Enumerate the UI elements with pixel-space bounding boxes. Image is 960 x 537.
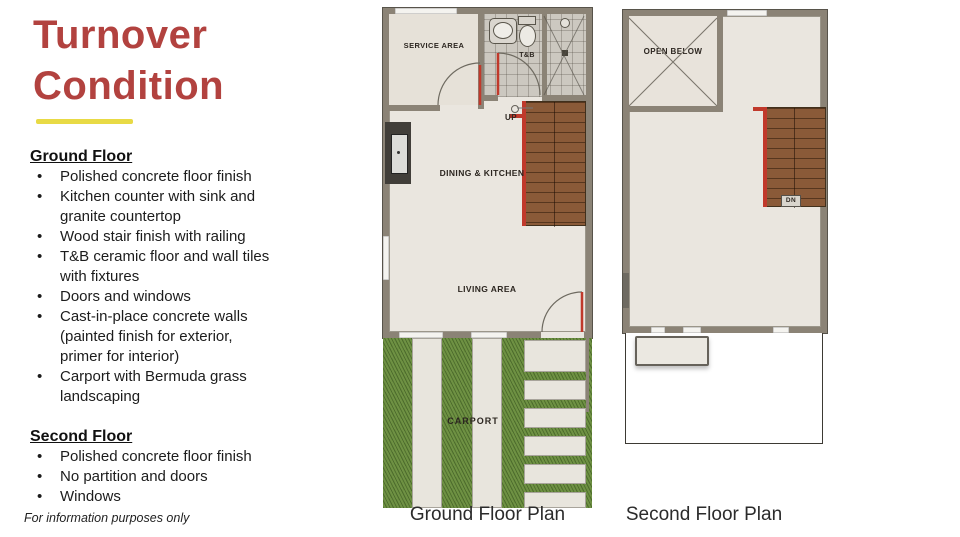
list-item: Carport with Bermuda grass landscaping: [28, 367, 316, 407]
stair-railing-arm: [753, 107, 764, 111]
ground-plan-caption: Ground Floor Plan: [383, 504, 592, 526]
sink-drain: [397, 151, 400, 154]
shower-head-fixture: [560, 18, 570, 28]
list-item: T&B ceramic floor and wall tiles with fi…: [28, 247, 316, 287]
slide: Turnover Condition Ground Floor Polished…: [0, 0, 960, 537]
open-below-area: [629, 16, 717, 106]
title-underline: [36, 119, 133, 124]
living-area-label: LIVING AREA: [431, 284, 543, 294]
second-plan-caption: Second Floor Plan: [598, 504, 810, 526]
footer-note: For information purposes only: [24, 511, 189, 525]
wall-tnb-bottom-left: [484, 95, 498, 101]
carport-area: CARPORT: [383, 338, 592, 508]
list-item: Doors and windows: [28, 287, 316, 307]
window-left: [623, 273, 629, 308]
paver-slab: [524, 464, 586, 484]
stair-center-line: [794, 108, 795, 208]
page-title: Turnover Condition: [33, 10, 353, 112]
window-top: [727, 10, 767, 16]
kitchen-counter: [385, 122, 411, 184]
carport-label: CARPORT: [433, 416, 513, 426]
list-item: Wood stair finish with railing: [28, 227, 316, 247]
wall-open-below-right: [717, 16, 723, 112]
carport-side-wall: [586, 338, 589, 412]
paver-slab: [524, 408, 586, 428]
ground-floor-heading: Ground Floor: [30, 148, 280, 166]
open-below-label: OPEN BELOW: [643, 47, 703, 57]
stair-center-line: [554, 102, 555, 227]
lavatory-basin: [493, 22, 513, 39]
wall-open-below-bottom: [629, 106, 723, 112]
toilet-fixture: [519, 25, 536, 47]
entry-pad: [524, 340, 586, 372]
stair-railing: [763, 107, 767, 207]
paver-slab: [524, 436, 586, 456]
dining-kitchen-label: DINING & KITCHEN: [421, 168, 543, 178]
stairs-down: [763, 107, 826, 207]
service-area-label: SERVICE AREA: [391, 41, 477, 50]
list-item: Cast-in-place concrete walls (painted fi…: [28, 307, 316, 367]
list-item: Kitchen counter with sink and granite co…: [28, 187, 316, 227]
up-label: UP: [501, 113, 521, 122]
canopy: [635, 336, 709, 366]
lavatory-fixture: [489, 18, 517, 44]
list-item: Windows: [28, 487, 316, 507]
window-left: [383, 236, 389, 280]
list-item: Polished concrete floor finish: [28, 167, 316, 187]
page-title-line2: Condition: [33, 61, 353, 112]
second-floor-list: Polished concrete floor finish No partit…: [28, 447, 316, 507]
page-title-line1: Turnover: [33, 10, 353, 61]
wall-service-bottom: [389, 105, 440, 111]
list-item: No partition and doors: [28, 467, 316, 487]
dn-label: DN: [782, 197, 800, 204]
stair-railing: [522, 101, 526, 226]
wall-shower-divider: [542, 14, 547, 97]
list-item: Polished concrete floor finish: [28, 447, 316, 467]
sink-fixture: [391, 134, 408, 174]
tnb-label: T&B: [514, 52, 540, 59]
dn-chip: DN: [781, 195, 801, 207]
toilet-tank: [518, 16, 536, 25]
ground-floor-plan: SERVICE AREA T&B UP DINING & KITCHEN LIV…: [383, 8, 592, 508]
stairs-up: [522, 101, 586, 226]
second-floor-plan: OPEN BELOW DN: [623, 10, 827, 448]
ground-floor-list: Polished concrete floor finish Kitchen c…: [28, 167, 316, 407]
paver-slab: [524, 380, 586, 400]
service-area-room: [389, 14, 478, 105]
stair-start-marker: [511, 105, 519, 113]
shower-drain: [562, 50, 568, 56]
second-floor-heading: Second Floor: [30, 428, 280, 446]
